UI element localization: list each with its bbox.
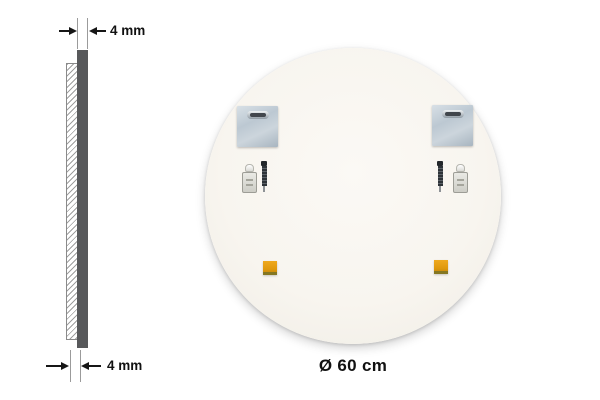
- dimension-arrow-shaft: [96, 30, 106, 32]
- wall-plug-cap: [245, 164, 254, 172]
- wall-plug-cap: [456, 164, 465, 172]
- dimension-arrow-shaft: [46, 365, 61, 367]
- mirror-back-view: [205, 48, 501, 344]
- mounting-plate-right: [432, 105, 473, 146]
- thickness-label-bottom: 4 mm: [107, 358, 142, 373]
- keyhole-slot-icon: [247, 111, 269, 119]
- wall-plug-left: [241, 164, 258, 194]
- screw-tip: [439, 186, 441, 192]
- adhesive-pad-left: [263, 261, 277, 275]
- arrow-right-icon: [69, 27, 77, 35]
- wall-plug-body: [453, 172, 468, 193]
- keyhole-slot-opening: [445, 112, 461, 116]
- screw-tip: [263, 186, 265, 192]
- product-diagram-canvas: 4 mm 4 mm: [0, 0, 600, 400]
- extension-line: [77, 18, 78, 49]
- wall-plug-body: [242, 172, 257, 193]
- mirror-panel-edge: [77, 50, 88, 348]
- keyhole-slot-opening: [250, 113, 266, 117]
- extension-line: [87, 18, 88, 49]
- mounting-plate-left: [237, 106, 278, 147]
- screw-shaft: [262, 166, 267, 186]
- dimension-arrow-shaft: [88, 365, 101, 367]
- diameter-label: Ø 60 cm: [205, 356, 501, 376]
- extension-line: [70, 350, 71, 382]
- wall-plug-slit: [457, 179, 464, 181]
- wall-plug-slit: [457, 184, 464, 186]
- screw-shaft: [438, 166, 443, 186]
- screw-left: [261, 161, 267, 192]
- wall-plug-slit: [246, 179, 253, 181]
- screw-right: [437, 161, 443, 192]
- thickness-label-top: 4 mm: [110, 23, 145, 38]
- arrow-right-icon: [61, 362, 69, 370]
- wall-plug-right: [452, 164, 469, 194]
- adhesive-pad-right: [434, 260, 448, 274]
- wall-plug-slit: [246, 184, 253, 186]
- keyhole-slot-icon: [442, 110, 464, 118]
